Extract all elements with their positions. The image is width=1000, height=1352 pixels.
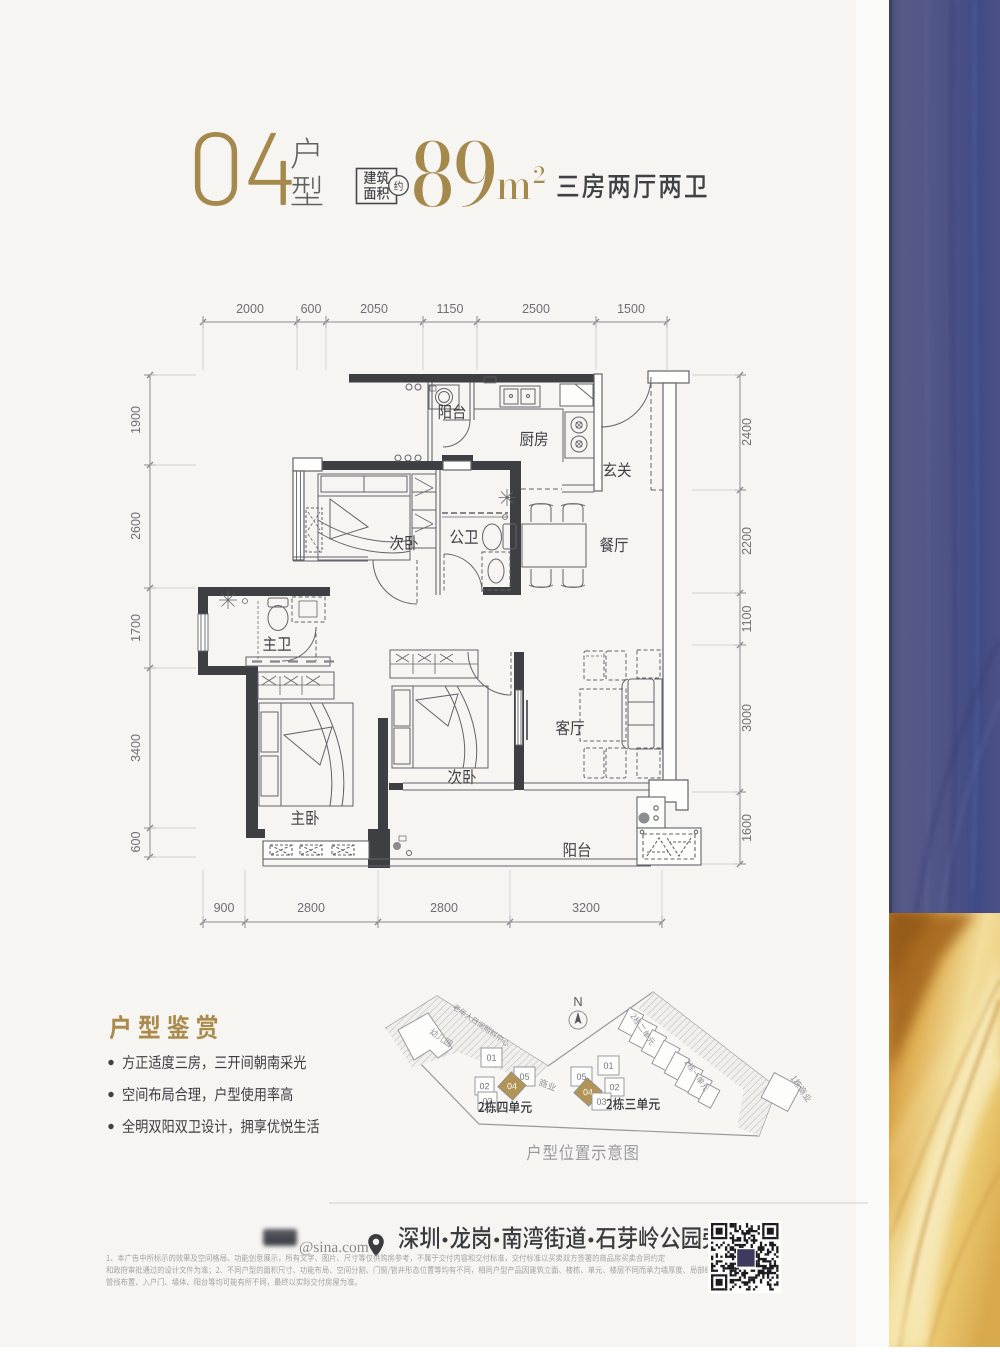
svg-text:2400: 2400: [740, 418, 754, 446]
svg-text:1600: 1600: [740, 814, 754, 842]
svg-text:900: 900: [214, 901, 235, 915]
svg-text:3400: 3400: [129, 734, 143, 762]
svg-text:600: 600: [129, 832, 143, 853]
svg-text:2050: 2050: [360, 302, 388, 316]
svg-text:1150: 1150: [437, 302, 464, 316]
svg-text:2800: 2800: [297, 901, 325, 915]
svg-text:3000: 3000: [740, 704, 754, 732]
svg-text:1900: 1900: [129, 406, 143, 434]
svg-text:1100: 1100: [740, 606, 754, 633]
svg-text:3200: 3200: [572, 901, 600, 915]
svg-text:2800: 2800: [430, 901, 458, 915]
svg-text:1700: 1700: [129, 614, 143, 642]
svg-text:2500: 2500: [522, 302, 550, 316]
svg-text:2600: 2600: [129, 512, 143, 540]
svg-text:2200: 2200: [740, 527, 754, 555]
svg-text:600: 600: [301, 302, 322, 316]
svg-text:1500: 1500: [617, 302, 645, 316]
svg-text:2000: 2000: [236, 302, 264, 316]
